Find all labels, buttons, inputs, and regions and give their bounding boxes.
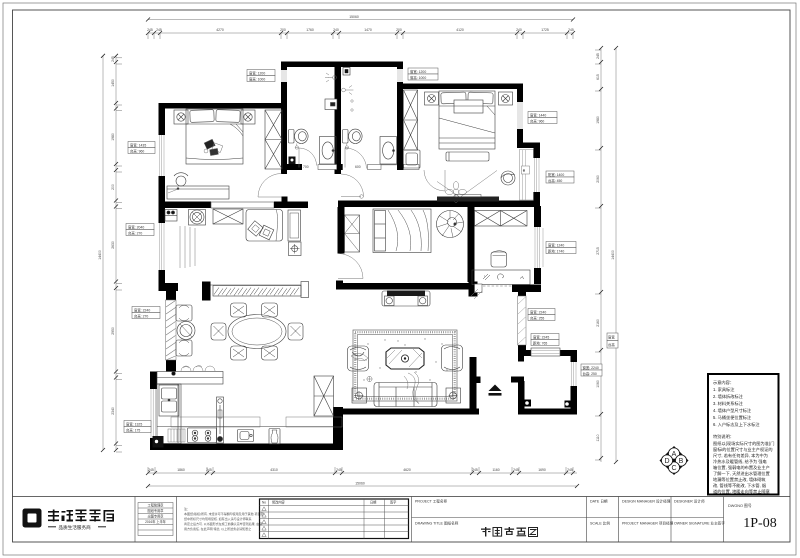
svg-text:图纸专用章: 图纸专用章 — [148, 508, 165, 513]
svg-text:2340: 2340 — [111, 407, 115, 415]
svg-text:245: 245 — [147, 28, 153, 32]
svg-text:240: 240 — [516, 28, 522, 32]
svg-text:窗宽: 2240: 窗宽: 2240 — [134, 307, 150, 312]
svg-text:DWGNO 图号: DWGNO 图号 — [728, 503, 752, 508]
svg-text:地漏等位置禁止改, 墙体砌筑: 地漏等位置禁止改, 墙体砌筑 — [713, 476, 766, 483]
svg-text:窗宽: 1200: 窗宽: 1200 — [410, 69, 426, 74]
svg-text:1860: 1860 — [177, 468, 185, 472]
svg-text:1160: 1160 — [492, 468, 499, 472]
svg-text:窗宽: 1435: 窗宽: 1435 — [130, 142, 146, 147]
svg-text:200: 200 — [396, 28, 402, 32]
svg-text:245: 245 — [111, 56, 115, 62]
svg-text:台高: 270: 台高: 270 — [134, 313, 148, 318]
svg-text:窗高: 1000: 窗高: 1000 — [410, 75, 426, 80]
svg-text:245: 245 — [148, 468, 154, 472]
svg-text:1690: 1690 — [538, 468, 546, 472]
svg-text:e: e — [523, 169, 525, 173]
svg-text:5. 马桶坐便位置标注: 5. 马桶坐便位置标注 — [713, 414, 752, 421]
svg-text:道的位置, 地暖走向等禁止随意: 道的位置, 地暖走向等禁止随意 — [713, 488, 770, 495]
svg-text:纸中所标尺寸均现场复核, 如有出入请与设计师联系: 纸中所标尺寸均现场复核, 如有出入请与设计师联系 — [184, 516, 252, 521]
svg-text:615: 615 — [596, 74, 600, 80]
svg-text:DATE 日期: DATE 日期 — [590, 499, 608, 504]
svg-text:4. 墙体户型尺寸标注: 4. 墙体户型尺寸标注 — [713, 407, 752, 414]
svg-text:1725: 1725 — [541, 28, 549, 32]
svg-text:用方负责任, 在此声明 特此, 以上所述务必请知悉之: 用方负责任, 在此声明 特此, 以上所述务必请知悉之 — [184, 526, 251, 531]
svg-text:4310: 4310 — [270, 468, 278, 472]
svg-text:3. 材料关系标注: 3. 材料关系标注 — [713, 400, 744, 407]
svg-text:DESIGNER 设计师: DESIGNER 设计师 — [674, 499, 705, 504]
svg-text:品质生活服务商: 品质生活服务商 — [59, 524, 92, 531]
svg-text:245: 245 — [156, 28, 162, 32]
svg-text:240: 240 — [333, 28, 339, 32]
svg-text:SCALE 比例: SCALE 比例 — [590, 521, 610, 526]
svg-text:1760: 1760 — [306, 28, 314, 32]
svg-text:2. 墙体拆改标注: 2. 墙体拆改标注 — [713, 393, 744, 400]
svg-text:箱位置, 强弱电的布置及业主产: 箱位置, 强弱电的布置及业主产 — [713, 464, 770, 471]
svg-text:本图纸(版权)所有, 未经许可不得翻印使用及用于其他 项目图: 本图纸(版权)所有, 未经许可不得翻印使用及用于其他 项目图 — [184, 511, 264, 516]
svg-text:14400: 14400 — [98, 250, 102, 260]
svg-text:尺寸, 若有任何差异, 本为中为: 尺寸, 若有任何差异, 本为中为 — [713, 452, 768, 459]
svg-text:D: D — [664, 458, 669, 465]
svg-text:2715: 2715 — [596, 247, 600, 255]
svg-text:B: B — [679, 458, 684, 465]
svg-text:窗宽: 1325: 窗宽: 1325 — [126, 421, 142, 426]
svg-text:窗宽: 2040: 窗宽: 2040 — [128, 224, 144, 229]
svg-text:台高: 175: 台高: 175 — [126, 427, 140, 432]
svg-text:商定之后方可, 以书面形式在施工前确认完毕否则后果, 由使: 商定之后方可, 以书面形式在施工前确认完毕否则后果, 由使 — [184, 521, 262, 526]
svg-text:出图专用章: 出图专用章 — [148, 514, 165, 519]
svg-text:工程管理章: 工程管理章 — [148, 503, 165, 508]
svg-text:台高: 450: 台高: 450 — [548, 178, 562, 183]
svg-text:1980: 1980 — [596, 116, 600, 124]
svg-text:DRAWING TITLE 图纸名称: DRAWING TITLE 图纸名称 — [415, 521, 459, 526]
svg-text:台高: 960: 台高: 960 — [530, 118, 544, 123]
svg-text:1060: 1060 — [596, 380, 600, 388]
svg-text:窗宽: 2240: 窗宽: 2240 — [530, 309, 546, 314]
svg-text:C: C — [671, 465, 676, 472]
svg-text:1110: 1110 — [596, 434, 600, 441]
svg-text:2630: 2630 — [111, 241, 115, 249]
svg-text:A: A — [672, 451, 677, 458]
svg-text:窗宽: 窗宽 — [608, 335, 615, 340]
svg-text:DESIGN MANAGER 设计经理: DESIGN MANAGER 设计经理 — [622, 499, 671, 504]
svg-text:2160: 2160 — [596, 319, 600, 327]
svg-text:1980: 1980 — [111, 133, 115, 141]
svg-text:6. 入户标志及上下水标注: 6. 入户标志及上下水标注 — [713, 421, 760, 428]
svg-text:窗高: 1000: 窗高: 1000 — [249, 76, 265, 81]
svg-text:台高: 960: 台高: 960 — [130, 148, 144, 153]
svg-text:距地: 765: 距地: 765 — [533, 340, 547, 345]
svg-text:245: 245 — [596, 53, 600, 59]
svg-text:1450: 1450 — [111, 79, 115, 87]
svg-text:示意内容：: 示意内容： — [713, 379, 734, 386]
svg-text:245: 245 — [567, 468, 573, 472]
svg-text:700: 700 — [303, 165, 309, 169]
svg-text:200: 200 — [280, 28, 286, 32]
svg-text:窗宽: 1200: 窗宽: 1200 — [249, 70, 265, 75]
svg-text:窗标i的位置尺寸与业主产权证的: 窗标i的位置尺寸与业主产权证的 — [713, 446, 773, 453]
svg-text:日期: 日期 — [370, 500, 376, 505]
svg-text:4620: 4620 — [403, 468, 411, 472]
svg-text:4120: 4120 — [456, 28, 464, 32]
svg-text:15060: 15060 — [349, 15, 359, 19]
svg-text:窗宽: 1240: 窗宽: 1240 — [548, 242, 564, 247]
svg-text:245: 245 — [336, 468, 342, 472]
svg-text:窗宽: 1440: 窗宽: 1440 — [530, 112, 546, 117]
svg-text:2016年 上半年: 2016年 上半年 — [145, 519, 167, 524]
svg-text:2950: 2950 — [111, 327, 115, 335]
svg-text:注：: 注： — [184, 506, 190, 511]
svg-text:1. 家具标注: 1. 家具标注 — [713, 386, 735, 393]
svg-text:PROJECT MANAGER 项目经理: PROJECT MANAGER 项目经理 — [622, 521, 674, 526]
svg-text:OWNER SIGNATURE 业主签字: OWNER SIGNATURE 业主签字 — [674, 521, 725, 526]
svg-text:台高: 台高 — [608, 342, 615, 347]
svg-text:窗宽: 2245: 窗宽: 2245 — [533, 334, 549, 339]
svg-text:台高: 270: 台高: 270 — [128, 230, 142, 235]
svg-text:245: 245 — [568, 28, 574, 32]
svg-text:200: 200 — [111, 184, 115, 190]
svg-text:图纸以(现场实际尺寸的图为准)门: 图纸以(现场实际尺寸的图为准)门 — [713, 440, 774, 447]
svg-text:阳宽: 1400: 阳宽: 1400 — [548, 172, 564, 177]
svg-text:4270: 4270 — [216, 28, 224, 32]
svg-text:14400: 14400 — [611, 250, 615, 260]
svg-text:了解一下, 天然进出水管理位置: 了解一下, 天然进出水管理位置 — [713, 470, 770, 477]
svg-text:冷热水及暖管线, 给予为 强电: 冷热水及暖管线, 给予为 强电 — [713, 458, 768, 465]
svg-text:15060: 15060 — [355, 482, 365, 486]
svg-text:PROJECT 工程名称: PROJECT 工程名称 — [415, 499, 447, 504]
svg-text:1470: 1470 — [364, 28, 372, 32]
svg-text:2060: 2060 — [596, 175, 600, 183]
svg-text:签字: 签字 — [390, 500, 396, 505]
svg-text:台高: 255: 台高: 255 — [530, 315, 544, 320]
svg-text:台高: 250: 台高: 250 — [583, 371, 597, 376]
svg-text:245: 245 — [472, 468, 478, 472]
svg-text:特别说明：: 特别说明： — [713, 433, 734, 440]
svg-text:改, 管线等不能改, 下水管, 烟: 改, 管线等不能改, 下水管, 烟 — [713, 482, 766, 489]
svg-text:1P-08: 1P-08 — [743, 516, 776, 531]
svg-text:距地: 1740: 距地: 1740 — [548, 248, 564, 253]
svg-text:600: 600 — [355, 165, 361, 169]
svg-text:窗宽: 2240: 窗宽: 2240 — [583, 365, 599, 370]
svg-text:修改内容: 修改内容 — [272, 500, 286, 505]
svg-text:No: No — [262, 501, 266, 505]
svg-text:245: 245 — [513, 468, 519, 472]
